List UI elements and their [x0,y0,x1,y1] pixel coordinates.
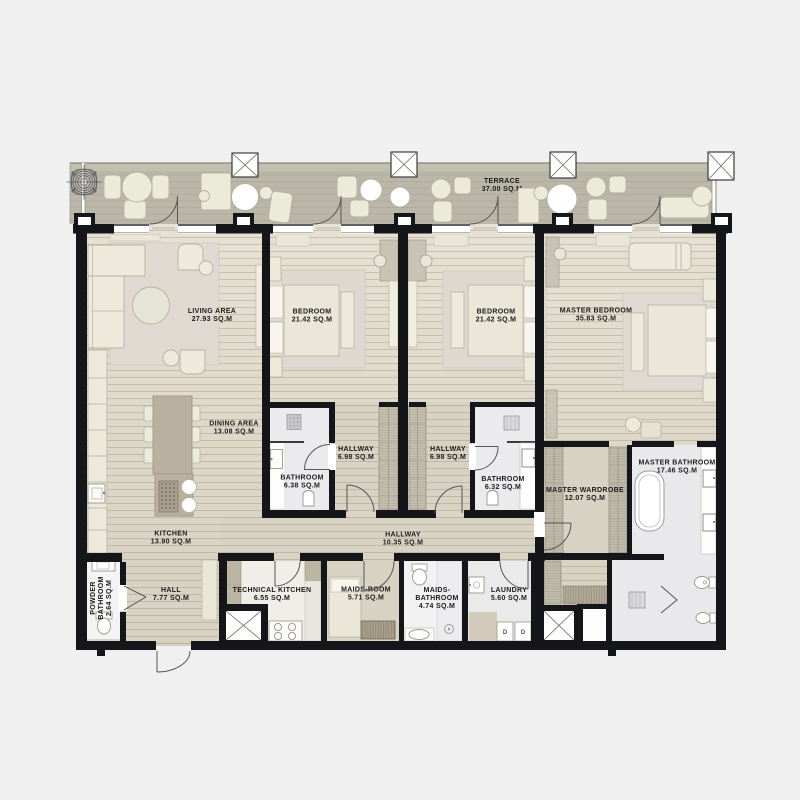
svg-text:35.83 SQ.M: 35.83 SQ.M [576,316,617,323]
svg-text:5.71 SQ.M: 5.71 SQ.M [348,595,384,602]
svg-text:6.55 SQ.M: 6.55 SQ.M [254,595,290,602]
svg-text:HALLWAY: HALLWAY [338,446,374,453]
svg-text:TECHNICAL KITCHEN: TECHNICAL KITCHEN [233,587,312,594]
svg-text:6.98 SQ.M: 6.98 SQ.M [338,454,374,461]
svg-text:D: D [503,630,508,636]
svg-text:5.60 SQ.M: 5.60 SQ.M [491,595,527,602]
svg-text:MAIDS-ROOM: MAIDS-ROOM [341,587,391,594]
svg-text:6.32 SQ.M: 6.32 SQ.M [485,484,521,491]
svg-text:6.38 SQ.M: 6.38 SQ.M [284,483,320,490]
svg-text:MAIDS-: MAIDS- [424,587,451,594]
svg-text:37.00 SQ.M: 37.00 SQ.M [482,186,523,193]
svg-text:BEDROOM: BEDROOM [293,309,332,316]
svg-text:2.64 SQ.M: 2.64 SQ.M [106,580,113,616]
svg-text:HALLWAY: HALLWAY [385,532,421,539]
svg-text:21.42 SQ.M: 21.42 SQ.M [476,317,517,324]
svg-text:HALLWAY: HALLWAY [430,446,466,453]
svg-text:MASTER BATHROOM: MASTER BATHROOM [639,460,716,467]
svg-text:POWDER: POWDER [90,581,97,614]
svg-text:BATHROOM: BATHROOM [280,475,323,482]
svg-text:BATHROOM: BATHROOM [415,595,458,602]
svg-text:13.90 SQ.M: 13.90 SQ.M [151,539,192,546]
svg-text:BEDROOM: BEDROOM [477,309,516,316]
svg-text:21.42 SQ.M: 21.42 SQ.M [292,317,333,324]
svg-text:7.77 SQ.M: 7.77 SQ.M [153,595,189,602]
svg-text:DINING AREA: DINING AREA [209,421,259,428]
svg-text:LIVING AREA: LIVING AREA [188,308,236,315]
svg-text:6.98 SQ.M: 6.98 SQ.M [430,454,466,461]
svg-text:TERRACE: TERRACE [484,178,520,185]
svg-text:12.07 SQ.M: 12.07 SQ.M [565,495,606,502]
svg-text:17.46 SQ.M: 17.46 SQ.M [657,468,698,475]
svg-text:MASTER WARDROBE: MASTER WARDROBE [546,487,624,494]
svg-text:KITCHEN: KITCHEN [154,531,187,538]
svg-text:D: D [521,630,526,636]
svg-text:27.93 SQ.M: 27.93 SQ.M [192,316,233,323]
svg-text:HALL: HALL [161,587,181,594]
svg-text:MASTER BEDROOM: MASTER BEDROOM [560,308,633,315]
svg-text:4.74 SQ.M: 4.74 SQ.M [419,603,455,610]
svg-text:10.35 SQ.M: 10.35 SQ.M [383,540,424,547]
svg-text:BATHROOM: BATHROOM [98,576,105,619]
svg-text:13.08 SQ.M: 13.08 SQ.M [214,429,255,436]
svg-text:BATHROOM: BATHROOM [481,476,524,483]
